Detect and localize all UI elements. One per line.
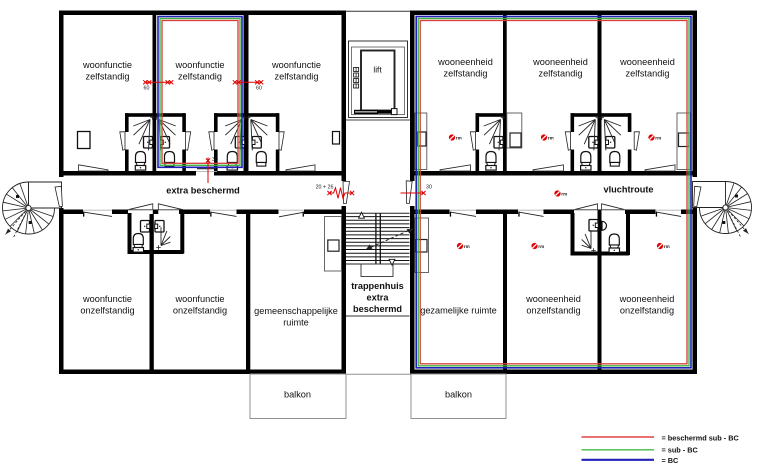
svg-text:zelfstandig: zelfstandig [86,72,130,82]
svg-text:20 + 26: 20 + 26 [316,185,334,191]
svg-text:zelfstandig: zelfstandig [539,69,583,79]
svg-text:extra beschermd: extra beschermd [166,186,240,196]
svg-text:woonfunctie: woonfunctie [271,60,321,70]
svg-text:onzelfstandig: onzelfstandig [620,306,674,316]
svg-text:zelfstandig: zelfstandig [444,69,488,79]
svg-text:extra: extra [367,293,390,303]
svg-text:60: 60 [256,85,262,91]
svg-text:zelfstandig: zelfstandig [275,72,319,82]
svg-text:rm: rm [456,136,462,141]
svg-text:gezamelijke ruimte: gezamelijke ruimte [420,306,497,316]
svg-text:balkon: balkon [445,390,472,400]
svg-text:balkon: balkon [284,390,311,400]
svg-text:rm: rm [538,244,544,249]
svg-text:onzelfstandig: onzelfstandig [173,306,227,316]
svg-text:60: 60 [144,85,150,91]
svg-text:= sub - BC: = sub - BC [662,446,699,455]
svg-text:woonfunctie: woonfunctie [82,294,132,304]
svg-text:wooneenheid: wooneenheid [437,57,493,67]
svg-text:wooneenheid: wooneenheid [619,57,675,67]
svg-text:lift: lift [373,66,382,75]
svg-text:rm: rm [655,136,661,141]
svg-text:beschermd: beschermd [353,304,402,314]
svg-text:vluchtroute: vluchtroute [603,185,653,195]
svg-text:ruimte: ruimte [283,318,309,328]
svg-text:wooneenheid: wooneenheid [532,57,588,67]
svg-text:wooneenheid: wooneenheid [619,294,675,304]
svg-text:rm: rm [548,136,554,141]
svg-text:rm: rm [664,244,670,249]
svg-text:trappenhuis: trappenhuis [351,281,404,291]
svg-text:onzelfstandig: onzelfstandig [526,306,580,316]
svg-text:woonfunctie: woonfunctie [174,294,224,304]
svg-text:30: 30 [212,157,218,163]
svg-text:= BC: = BC [662,456,680,465]
svg-text:30: 30 [426,185,432,191]
svg-text:woonfunctie: woonfunctie [82,60,132,70]
svg-text:rm: rm [561,192,567,197]
svg-text:wooneenheid: wooneenheid [525,294,581,304]
svg-text:woonfunctie: woonfunctie [174,60,224,70]
svg-text:zelfstandig: zelfstandig [178,72,222,82]
svg-text:rm: rm [464,244,470,249]
svg-text:onzelfstandig: onzelfstandig [80,306,134,316]
svg-text:gemeenschappelijke: gemeenschappelijke [254,306,338,316]
svg-text:= beschermd sub - BC: = beschermd sub - BC [662,434,740,443]
svg-text:zelfstandig: zelfstandig [626,69,670,79]
